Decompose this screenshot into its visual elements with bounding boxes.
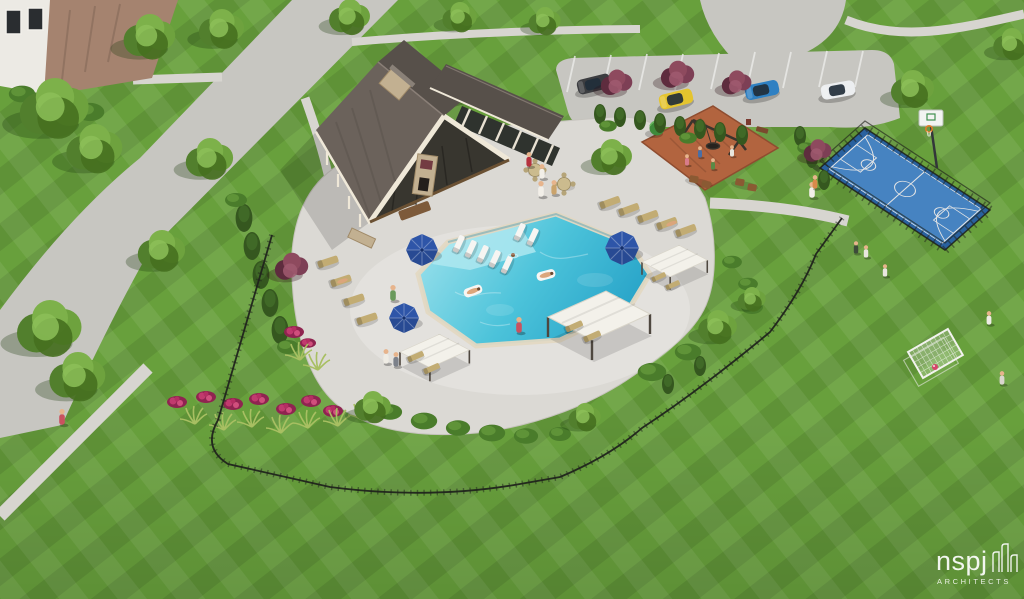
house-window: [28, 8, 43, 30]
house-window: [6, 10, 21, 34]
soccer-ball: [932, 364, 938, 370]
architects-text: ARCHITECTS: [937, 577, 1011, 586]
brand-text: nspj: [936, 546, 988, 576]
rendering-root: nspj ARCHITECTS: [0, 0, 1024, 599]
rendering-canvas: nspj ARCHITECTS: [0, 0, 1024, 599]
trash-can: [746, 119, 751, 125]
